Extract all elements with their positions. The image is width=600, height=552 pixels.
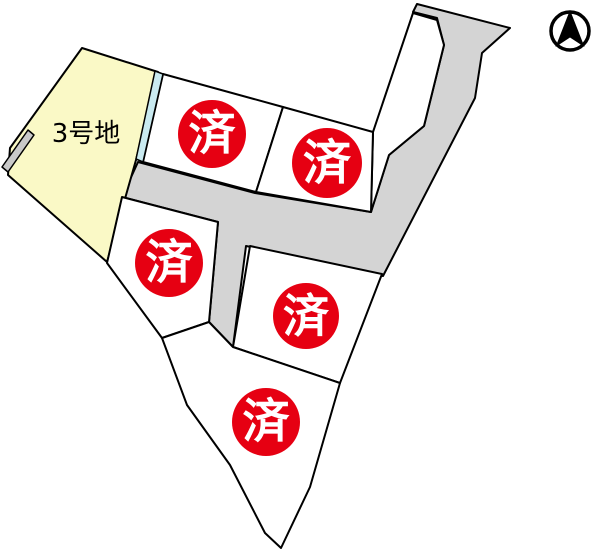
subdivision-map: 3号地済済済済済	[0, 0, 600, 552]
lot-sold-5-sold-badge-text: 済	[243, 395, 291, 450]
lot-sold-3-sold-badge-text: 済	[146, 236, 194, 291]
lot-sold-4-sold-badge-text: 済	[283, 289, 330, 343]
lot-3-label: 3号地	[52, 119, 121, 149]
lot-sold-1-sold-badge-text: 済	[189, 107, 237, 162]
lot-sold-2-sold-badge-text: 済	[303, 135, 352, 191]
subdivision-map-svg: 3号地済済済済済	[0, 0, 600, 552]
